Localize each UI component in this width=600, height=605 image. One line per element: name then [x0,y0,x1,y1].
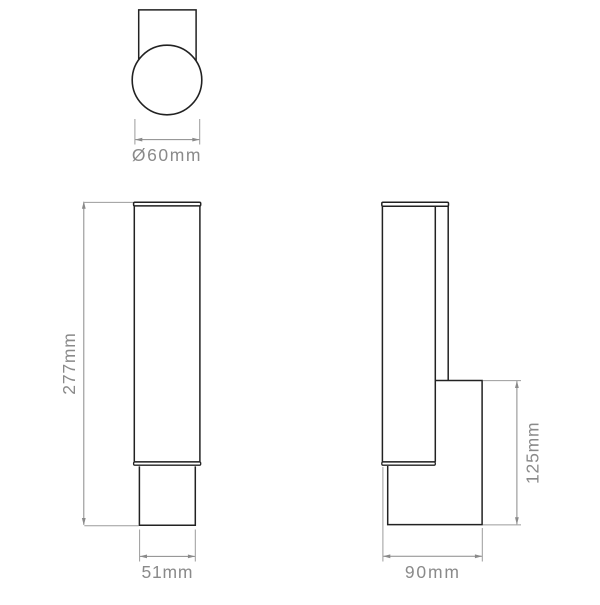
svg-text:125mm: 125mm [523,422,543,484]
svg-text:277mm: 277mm [59,332,79,394]
svg-text:Ø60mm: Ø60mm [132,145,202,165]
svg-text:51mm: 51mm [141,562,193,582]
svg-text:90mm: 90mm [405,562,461,582]
